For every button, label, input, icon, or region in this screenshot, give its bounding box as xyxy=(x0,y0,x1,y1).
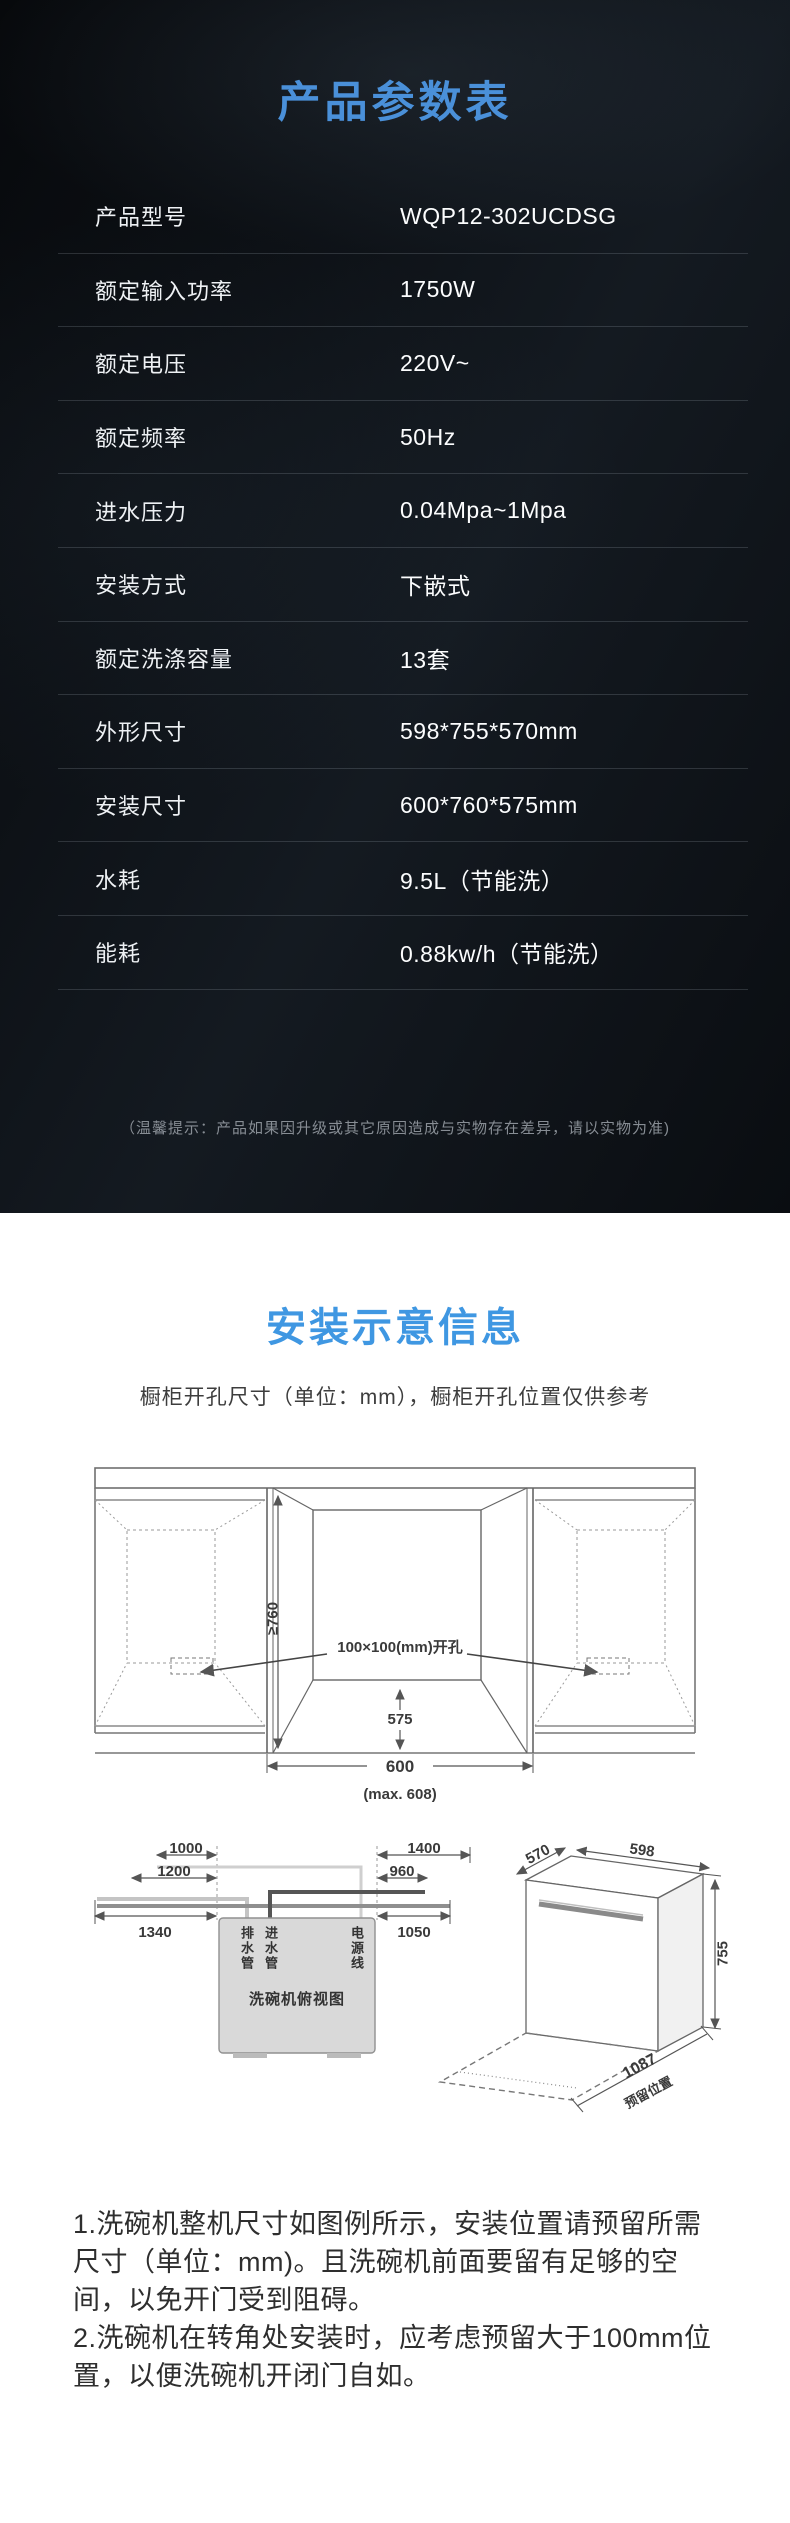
spec-row-rated-voltage: 额定电压 220V~ xyxy=(58,327,748,401)
spec-section: 产品参数表 产品型号 WQP12-302UCDSG 额定输入功率 1750W 额… xyxy=(0,0,790,1213)
install-note-2: 2.洗碗机在转角处安装时，应考虑预留大于100mm位置，以便洗碗机开闭门自如。 xyxy=(73,2319,721,2395)
spec-row-outer-size: 外形尺寸 598*755*570mm xyxy=(58,695,748,769)
spec-value: 9.5L（节能洗） xyxy=(400,862,564,896)
spec-row-rated-frequency: 额定频率 50Hz xyxy=(58,401,748,475)
cabinet-width-max-dim: (max. 608) xyxy=(350,1786,450,1803)
spec-value: 13套 xyxy=(400,641,450,675)
spec-row-install-type: 安装方式 下嵌式 xyxy=(58,548,748,622)
spec-label: 安装方式 xyxy=(58,568,187,600)
dim-1000: 1000 xyxy=(156,1840,216,1857)
inlet-hose-label: 进水管 xyxy=(261,1926,280,1971)
spec-label: 产品型号 xyxy=(58,200,187,232)
spec-value: 600*760*575mm xyxy=(400,792,578,819)
spec-footnote: （温馨提示：产品如果因升级或其它原因造成与实物存在差异，请以实物为准) xyxy=(0,1117,790,1138)
spec-value: 50Hz xyxy=(400,424,456,451)
spec-row-capacity: 额定洗涤容量 13套 xyxy=(58,622,748,696)
spec-value: WQP12-302UCDSG xyxy=(400,203,617,230)
spec-label: 额定电压 xyxy=(58,347,187,379)
dim-960: 960 xyxy=(372,1863,432,1880)
cabinet-width-dim: 600 xyxy=(365,1757,435,1777)
spec-row-install-size: 安装尺寸 600*760*575mm xyxy=(58,769,748,843)
spec-value: 0.04Mpa~1Mpa xyxy=(400,497,566,524)
hose-layout-diagram: 1000 1200 1340 1400 960 1050 排水管 进水管 电源线… xyxy=(65,1840,725,2175)
dim-1050: 1050 xyxy=(384,1924,444,1941)
spec-section-title: 产品参数表 xyxy=(0,68,790,130)
cabinet-height-dim: ≥760 xyxy=(265,1589,282,1649)
spec-row-water-pressure: 进水压力 0.04Mpa~1Mpa xyxy=(58,474,748,548)
dim-1400: 1400 xyxy=(394,1840,454,1857)
spec-table: 产品型号 WQP12-302UCDSG 额定输入功率 1750W 额定电压 22… xyxy=(58,180,748,990)
spec-row-energy-use: 能耗 0.88kw/h（节能洗） xyxy=(58,916,748,990)
cabinet-depth-dim: 575 xyxy=(380,1711,420,1728)
install-section: 安装示意信息 橱柜开孔尺寸（单位：mm），橱柜开孔位置仅供参考 xyxy=(0,1213,790,2523)
spec-label: 外形尺寸 xyxy=(58,715,187,747)
dim-1340: 1340 xyxy=(125,1924,185,1941)
spec-value: 598*755*570mm xyxy=(400,718,578,745)
install-section-subtitle: 橱柜开孔尺寸（单位：mm），橱柜开孔位置仅供参考 xyxy=(0,1381,790,1411)
install-notes: 1.洗碗机整机尺寸如图例所示，安装位置请预留所需尺寸（单位：mm)。且洗碗机前面… xyxy=(73,2205,721,2395)
spec-label: 能耗 xyxy=(58,936,141,968)
spec-label: 额定洗涤容量 xyxy=(58,642,233,674)
dim-1200: 1200 xyxy=(144,1863,204,1880)
install-note-1: 1.洗碗机整机尺寸如图例所示，安装位置请预留所需尺寸（单位：mm)。且洗碗机前面… xyxy=(73,2205,721,2319)
spec-value: 1750W xyxy=(400,276,475,303)
cabinet-opening-diagram: ≥760 100×100(mm)开孔 575 600 (max. 608) xyxy=(65,1458,725,1818)
spec-value: 220V~ xyxy=(400,350,470,377)
product-detail-page: 产品参数表 产品型号 WQP12-302UCDSG 额定输入功率 1750W 额… xyxy=(0,0,790,2523)
spec-label: 安装尺寸 xyxy=(58,789,187,821)
dim-755: 755 xyxy=(715,1934,732,1974)
spec-label: 额定输入功率 xyxy=(58,274,233,306)
spec-label: 额定频率 xyxy=(58,421,187,453)
spec-label: 水耗 xyxy=(58,863,141,895)
spec-row-water-use: 水耗 9.5L（节能洗） xyxy=(58,842,748,916)
cabinet-hole-dim: 100×100(mm)开孔 xyxy=(300,1636,500,1657)
spec-row-rated-power: 额定输入功率 1750W xyxy=(58,254,748,328)
spec-value: 下嵌式 xyxy=(400,567,471,601)
drain-hose-label: 排水管 xyxy=(237,1926,256,1971)
hose-layout-drawing xyxy=(65,1840,725,2175)
spec-value: 0.88kw/h（节能洗） xyxy=(400,935,614,969)
top-view-caption: 洗碗机俯视图 xyxy=(219,1988,375,2009)
spec-row-model: 产品型号 WQP12-302UCDSG xyxy=(58,180,748,254)
power-cord-label: 电源线 xyxy=(347,1926,366,1971)
install-section-title: 安装示意信息 xyxy=(0,1295,790,1353)
spec-label: 进水压力 xyxy=(58,495,187,527)
